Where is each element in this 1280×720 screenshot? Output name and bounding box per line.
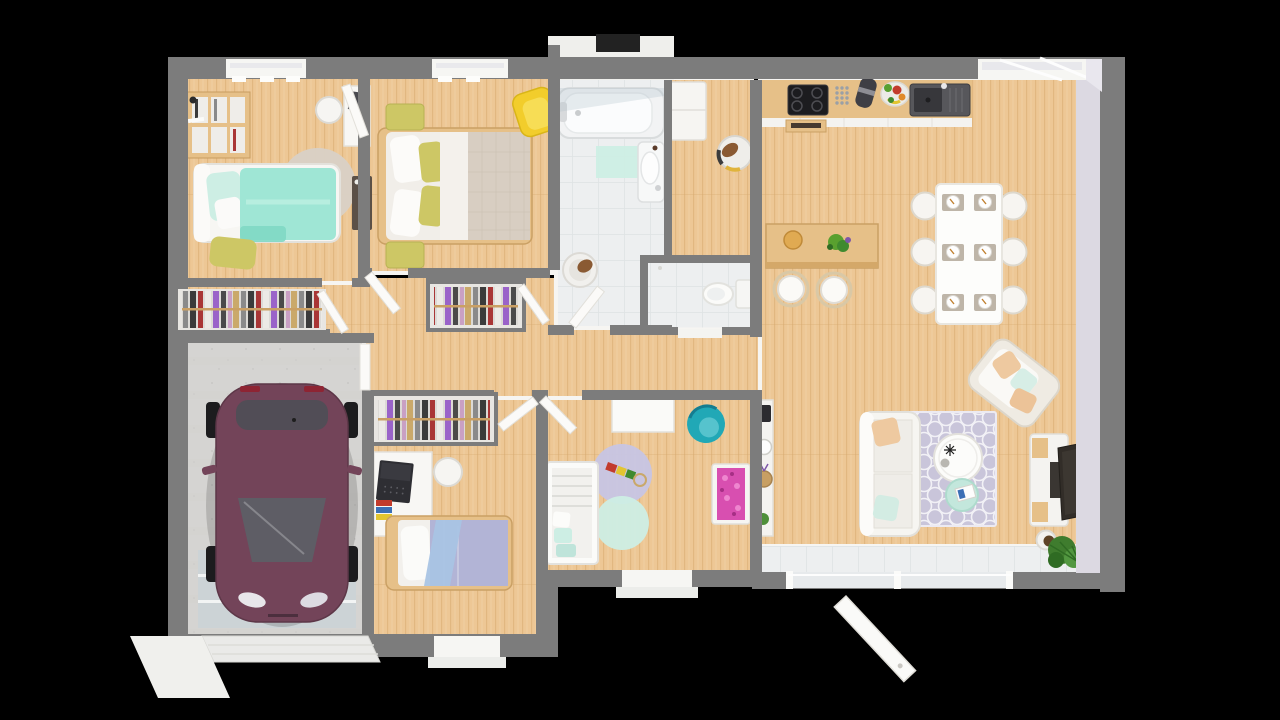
terrace-strip bbox=[760, 546, 1078, 573]
tail-light bbox=[304, 386, 324, 392]
wall-bedroom1-closet bbox=[176, 278, 322, 287]
pillow-mint bbox=[872, 494, 900, 522]
wall-garage-kids bbox=[362, 390, 374, 637]
closet-rail bbox=[182, 308, 322, 311]
single-bed-teal bbox=[194, 164, 340, 242]
book bbox=[376, 500, 392, 506]
right-wall-face bbox=[1076, 79, 1102, 573]
screenshot-canvas bbox=[0, 0, 1280, 720]
quilt-greige bbox=[468, 132, 530, 240]
hallway-closet bbox=[430, 284, 522, 328]
garage-service-door bbox=[360, 344, 370, 390]
fruit-bowl bbox=[881, 82, 909, 106]
utility-cabinet bbox=[670, 82, 706, 140]
drain bbox=[575, 110, 581, 116]
dining-chair bbox=[1000, 239, 1027, 266]
wall-utility-kitchen bbox=[750, 80, 762, 337]
side-table bbox=[946, 479, 978, 511]
crib-pillow-mint2 bbox=[556, 544, 576, 557]
window-sill bbox=[428, 657, 506, 668]
window-sill bbox=[616, 587, 698, 598]
kids-closet bbox=[374, 396, 494, 442]
wall-table bbox=[612, 396, 674, 432]
snack-bowl bbox=[784, 231, 802, 249]
wall-master-bottom bbox=[408, 268, 550, 278]
wall-bath-utility bbox=[664, 80, 672, 257]
pillow-peach bbox=[871, 417, 902, 448]
laundry-basket bbox=[563, 253, 597, 287]
dining-chair bbox=[912, 239, 939, 266]
desk-chair bbox=[316, 97, 342, 123]
dining-chair bbox=[912, 287, 939, 314]
antenna bbox=[292, 418, 296, 422]
dining-chair bbox=[912, 193, 939, 220]
closet-rail bbox=[434, 305, 518, 308]
crib-pillow-white bbox=[552, 511, 570, 528]
crib bbox=[546, 462, 598, 564]
wall-bedroom-bath bbox=[548, 45, 560, 270]
bedroom1-window bbox=[226, 59, 306, 82]
double-bed bbox=[378, 128, 532, 244]
wall-bedrooms bbox=[358, 77, 370, 287]
dining-chair bbox=[1000, 287, 1027, 314]
rear-window bbox=[236, 400, 328, 430]
lamp bbox=[190, 97, 197, 104]
round-rug-mint bbox=[595, 496, 649, 550]
wall-nursery-living bbox=[750, 390, 762, 572]
room-garage bbox=[198, 383, 363, 628]
living-glass-doors bbox=[786, 571, 1013, 589]
kitchen-sink bbox=[910, 83, 970, 116]
wall-wc-bottom bbox=[722, 327, 752, 335]
bar-stool bbox=[774, 272, 808, 306]
wall-garage-top bbox=[168, 333, 374, 343]
bedroom1-closet bbox=[178, 289, 326, 330]
coffee-table bbox=[934, 434, 982, 482]
bath-mat bbox=[596, 146, 638, 178]
nursery-window bbox=[616, 570, 698, 598]
left-wall bbox=[168, 57, 188, 657]
wall-kids-nursery bbox=[536, 390, 548, 587]
book bbox=[376, 507, 392, 513]
laptop bbox=[376, 460, 414, 503]
right-wall bbox=[1100, 57, 1125, 592]
dining-area bbox=[912, 184, 1027, 324]
bathtub bbox=[558, 88, 664, 138]
garage-door bbox=[202, 636, 380, 662]
bathroom-window-recess bbox=[596, 34, 640, 52]
bathroom-sink bbox=[638, 142, 664, 202]
cooktop bbox=[788, 85, 828, 115]
nightstand-top bbox=[386, 104, 424, 130]
oven bbox=[786, 120, 826, 132]
wc-threshold bbox=[678, 329, 722, 338]
olive-pouf bbox=[209, 236, 258, 271]
sofa bbox=[860, 412, 920, 536]
tail-light bbox=[240, 386, 260, 392]
toilet-tank bbox=[736, 280, 752, 308]
dining-chair bbox=[1000, 193, 1027, 220]
kids-desk-chair bbox=[434, 458, 462, 486]
pillow-white bbox=[214, 196, 245, 230]
kids-bedroom-window bbox=[428, 636, 506, 668]
car bbox=[201, 383, 362, 627]
wall-wc-top bbox=[640, 255, 752, 263]
closet-rail bbox=[378, 418, 490, 421]
pet-bed bbox=[718, 136, 752, 170]
crib-pillow-mint bbox=[554, 528, 572, 543]
floorplan-render bbox=[0, 0, 1280, 720]
kitchen-island bbox=[766, 224, 878, 268]
bookshelf bbox=[186, 92, 250, 158]
step-wall bbox=[536, 585, 558, 657]
nightstand-bottom bbox=[386, 242, 424, 268]
faucet bbox=[941, 83, 947, 89]
single-bed-lavender bbox=[386, 516, 512, 590]
wall-hallway-bottom-b bbox=[582, 390, 760, 400]
pink-dresser bbox=[712, 464, 750, 524]
bar-stool bbox=[817, 273, 851, 307]
